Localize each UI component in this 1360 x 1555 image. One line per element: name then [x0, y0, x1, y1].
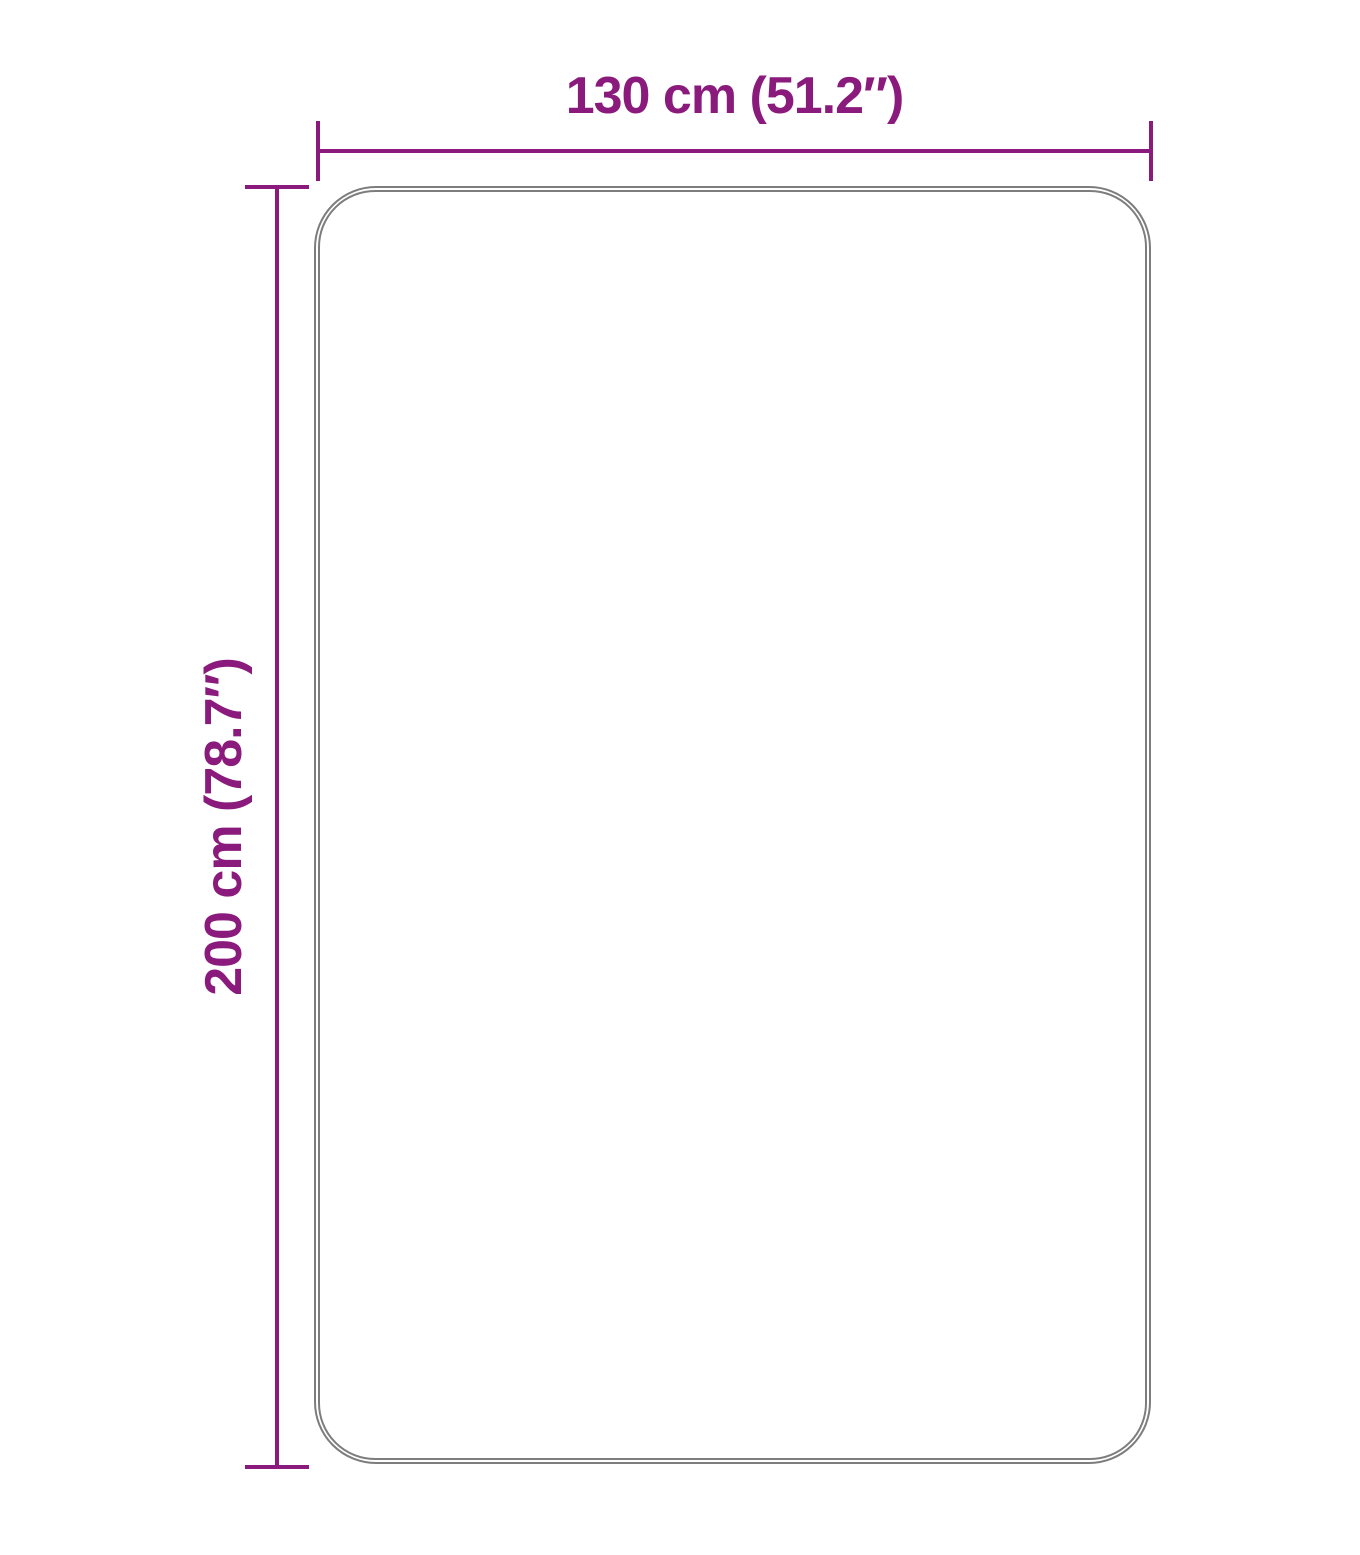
width-dimension-label: 130 cm (51.2″)	[318, 68, 1151, 124]
width-dimension-line	[318, 149, 1151, 153]
height-line-bottom-cap	[245, 1465, 309, 1469]
height-line-top-cap	[245, 185, 309, 189]
height-dimension-label: 200 cm (78.7″)	[194, 658, 254, 996]
rug-dimension-diagram: 130 cm (51.2″) 200 cm (78.7″)	[0, 0, 1360, 1555]
rug-outline	[314, 186, 1151, 1464]
height-dimension-line	[275, 187, 279, 1467]
width-line-right-cap	[1149, 121, 1153, 181]
rug-outline-inner	[318, 190, 1147, 1460]
width-line-left-cap	[316, 121, 320, 181]
